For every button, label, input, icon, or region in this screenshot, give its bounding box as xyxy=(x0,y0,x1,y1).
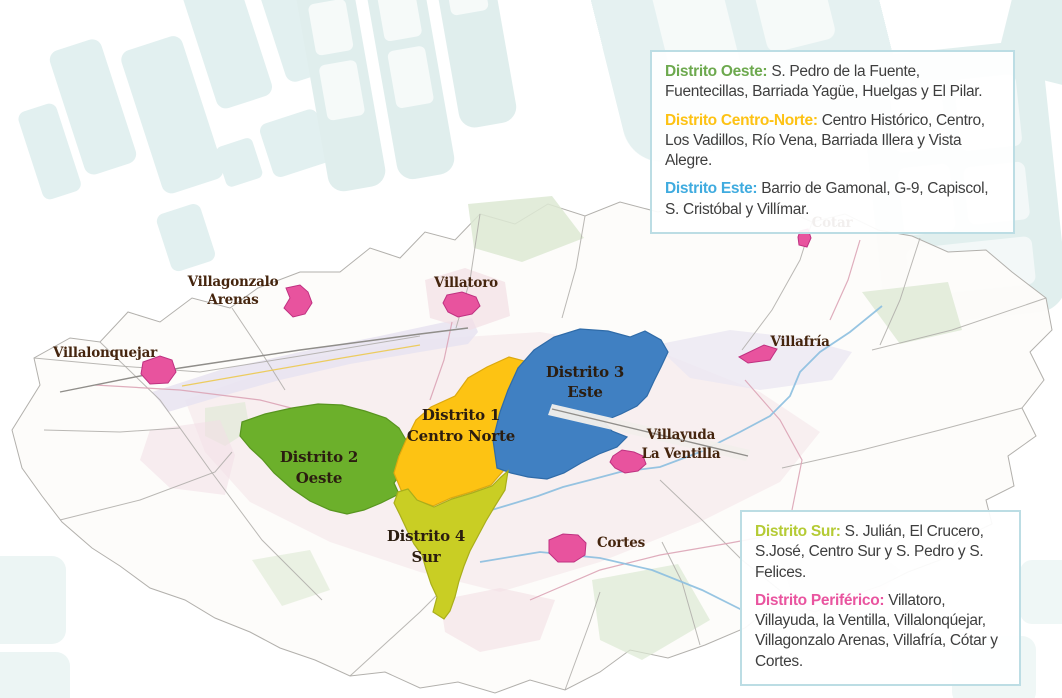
label-villalonquejar: Villalonquejar xyxy=(52,345,158,361)
legend-south-districts: Distrito Sur: S. Julián, El Crucero, S.J… xyxy=(740,510,1021,686)
legend-label-periferico: Distrito Periférico: xyxy=(755,592,884,609)
legend-item-periferico: Distrito Periférico: Villatoro, Villayud… xyxy=(755,591,1006,672)
legend-label-centro-norte: Distrito Centro-Norte: xyxy=(665,112,818,129)
label-line: Centro Norte xyxy=(407,427,515,445)
legend-north-districts: Distrito Oeste: S. Pedro de la Fuente, F… xyxy=(650,50,1015,234)
label-line: Arenas xyxy=(206,292,259,308)
label-villatoro: Villatoro xyxy=(433,275,498,291)
legend-label-sur: Distrito Sur: xyxy=(755,523,841,540)
label-villafria: Villafría xyxy=(769,334,830,350)
label-line: Distrito 1 xyxy=(422,406,500,424)
legend-item-sur: Distrito Sur: S. Julián, El Crucero, S.J… xyxy=(755,522,1006,583)
legend-label-este: Distrito Este: xyxy=(665,180,757,197)
label-line: Villagonzalo xyxy=(187,274,279,290)
label-line: La Ventilla xyxy=(642,446,721,462)
label-line: Cortes xyxy=(597,535,646,551)
legend-item-este: Distrito Este: Barrio de Gamonal, G-9, C… xyxy=(665,179,1000,220)
legend-label-oeste: Distrito Oeste: xyxy=(665,63,767,80)
label-line: Sur xyxy=(411,548,441,566)
label-line: Distrito 2 xyxy=(280,448,358,466)
label-line: Distrito 4 xyxy=(387,527,465,545)
label-line: Villayuda xyxy=(646,427,716,443)
village-cortes-area xyxy=(549,534,586,562)
label-line: Villalonquejar xyxy=(52,345,158,361)
legend-item-oeste: Distrito Oeste: S. Pedro de la Fuente, F… xyxy=(665,62,1000,103)
label-line: Oeste xyxy=(296,469,343,487)
label-line: Villatoro xyxy=(433,275,498,291)
label-cortes: Cortes xyxy=(597,535,646,551)
legend-item-centro-norte: Distrito Centro-Norte: Centro Histórico,… xyxy=(665,111,1000,172)
label-line: Este xyxy=(567,383,603,401)
label-line: Villafría xyxy=(769,334,830,350)
label-line: Distrito 3 xyxy=(546,363,624,381)
